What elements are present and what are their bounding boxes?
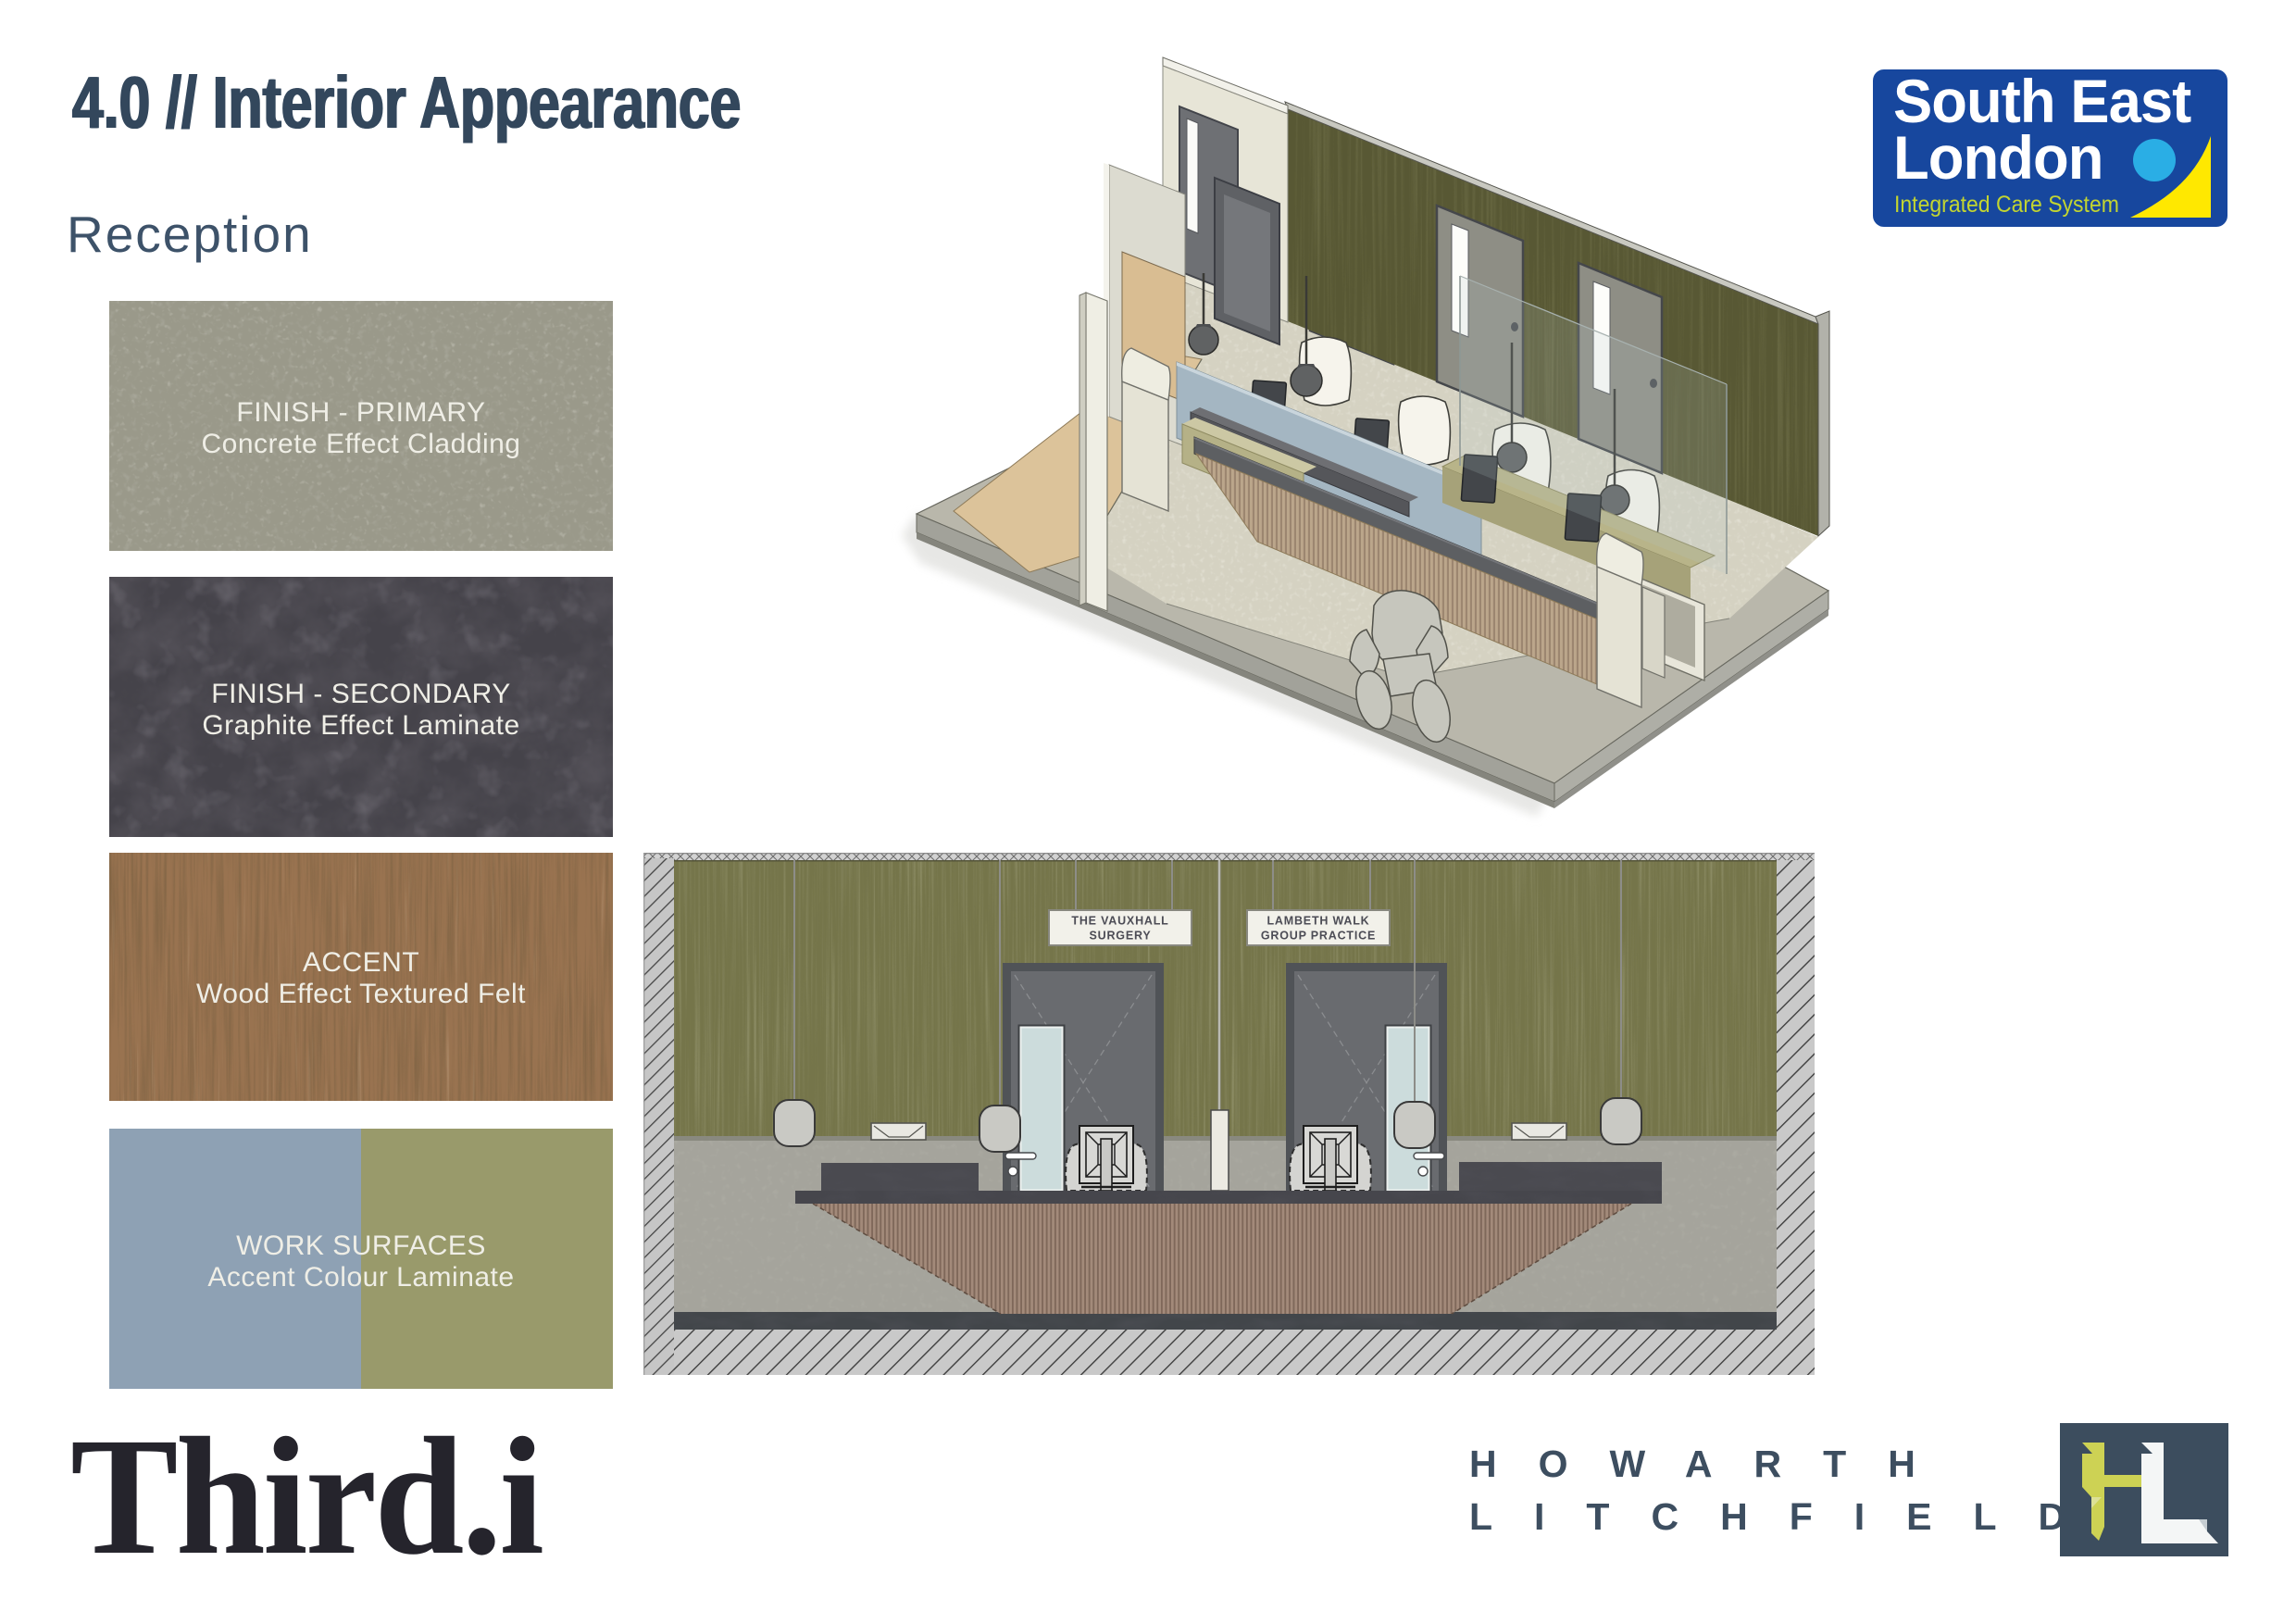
svg-text:SURGERY: SURGERY (1090, 930, 1152, 943)
svg-text:LAMBETH WALK: LAMBETH WALK (1267, 915, 1370, 928)
svg-text:THE VAUXHALL: THE VAUXHALL (1071, 915, 1168, 928)
svg-text:GROUP PRACTICE: GROUP PRACTICE (1261, 930, 1376, 943)
